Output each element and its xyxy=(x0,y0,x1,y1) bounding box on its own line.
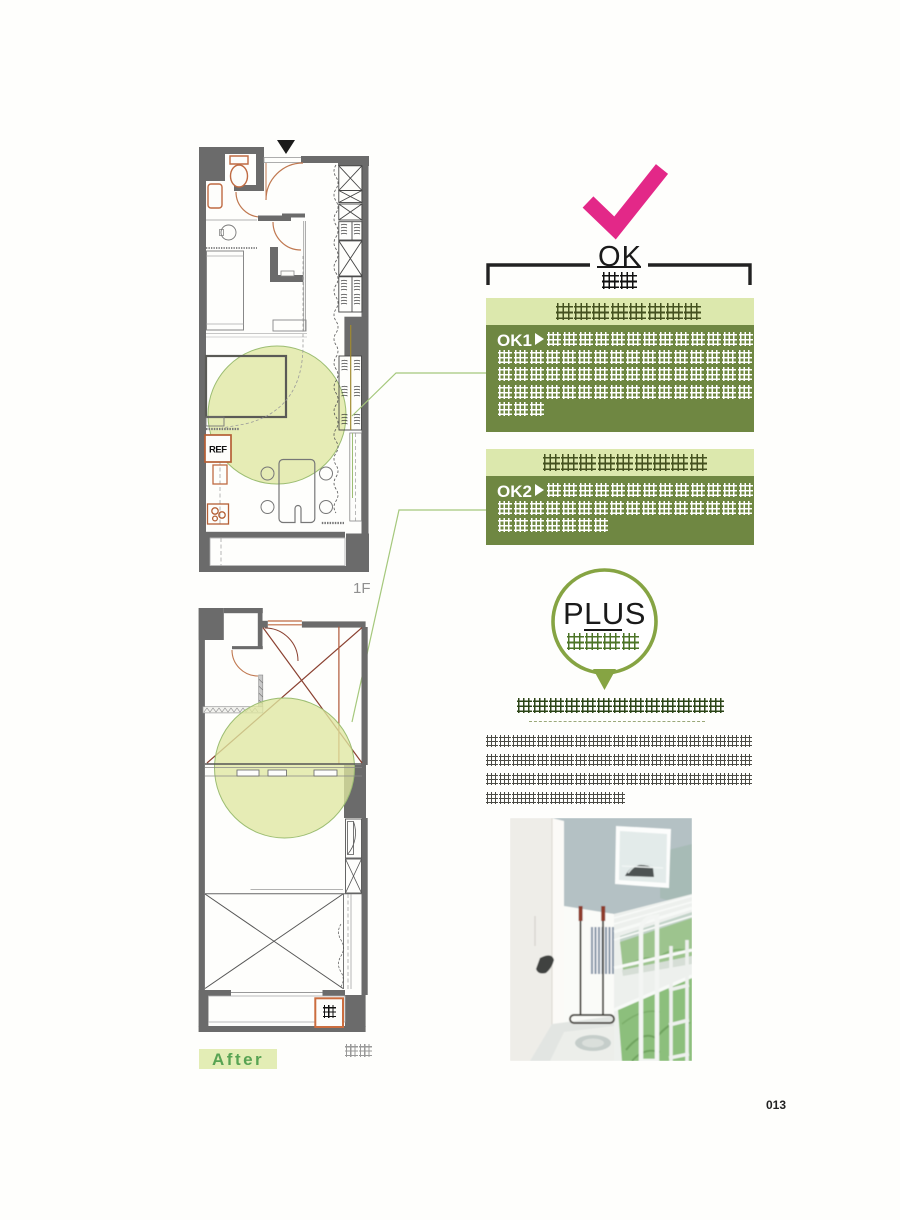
svg-text:REF: REF xyxy=(209,445,227,456)
